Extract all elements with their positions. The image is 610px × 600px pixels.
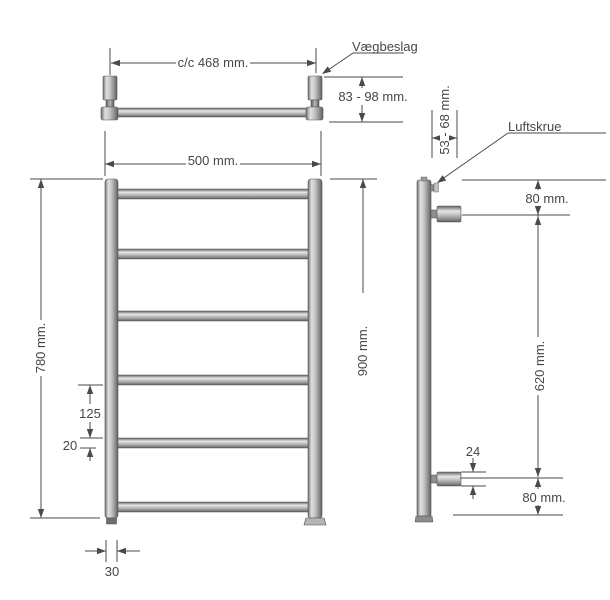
arrowhead-up: [360, 179, 366, 188]
arrowhead-right: [97, 548, 106, 554]
dim-wall-distance: 83 - 98 mm.: [324, 77, 408, 122]
arrowhead-down: [359, 113, 365, 122]
bracket-span-label: 620 mm.: [532, 341, 547, 392]
arrowhead-up: [535, 216, 541, 225]
top-view-right-bracket-base: [306, 107, 323, 120]
dim-center-distance: c/c 468 mm.: [110, 48, 316, 75]
center-distance-label: c/c 468 mm.: [178, 55, 249, 70]
air-screw-label: Luftskrue: [508, 119, 561, 134]
air-screw-cap: [421, 177, 427, 181]
arrowhead-up: [359, 77, 365, 86]
air-screw-stem: [431, 185, 435, 192]
bar-spacing-label: 125: [79, 406, 101, 421]
bottom-offset-label: 80 mm.: [522, 490, 565, 505]
dim-bar-spacing-125: 125: [78, 385, 103, 438]
arrowhead-up: [87, 448, 93, 457]
width-label: 500 mm.: [188, 153, 239, 168]
arrowhead-right: [312, 161, 321, 167]
arrowhead-left: [105, 161, 114, 167]
dim-width-500: 500 mm.: [105, 131, 321, 176]
front-right-rail: [308, 179, 322, 518]
arrowhead-down: [87, 429, 93, 438]
rail-width-label: 30: [105, 564, 119, 579]
front-left-foot: [107, 518, 117, 524]
side-view: 53 - 68 mm. Luftskrue 80 mm.: [415, 85, 606, 522]
wall-bracket-callout: Vægbeslag: [320, 39, 418, 77]
height-left-label: 780 mm.: [33, 323, 48, 374]
dim-rail-width-30: 30: [85, 540, 140, 579]
arrowhead-up: [535, 180, 541, 189]
arrowhead-up: [87, 385, 93, 394]
arrowhead-left: [111, 60, 120, 66]
top-view-left-bracket-base: [101, 107, 118, 120]
side-foot: [415, 516, 433, 522]
top-view-left-bracket-neck: [106, 100, 114, 107]
wall-bracket-label: Vægbeslag: [352, 39, 418, 54]
dim-height-900: 900 mm.: [330, 179, 377, 376]
arrowhead-down: [470, 463, 476, 472]
height-right-label: 900 mm.: [355, 326, 370, 377]
radiator-drawing: c/c 468 mm. Vægbeslag 83 - 98 mm.: [0, 0, 610, 600]
arrowhead-down: [535, 206, 541, 215]
front-bar-4: [116, 375, 310, 385]
dim-height-780: 780 mm.: [30, 179, 103, 518]
front-bar-1: [116, 189, 310, 199]
arrowhead-down: [38, 509, 44, 518]
leader-arrowhead: [320, 66, 331, 76]
air-screw-icon: [434, 183, 439, 192]
arrowhead-down: [535, 468, 541, 477]
arrowhead-right: [449, 135, 457, 141]
arrowhead-down: [535, 506, 541, 515]
dim-bar-diameter-20: 20: [63, 438, 103, 461]
front-bar-6: [116, 502, 310, 512]
arrowhead-up: [535, 478, 541, 487]
top-view-left-bracket-cylinder: [103, 76, 117, 100]
side-bottom-bracket-stub: [431, 475, 437, 483]
technical-drawing-page: c/c 468 mm. Vægbeslag 83 - 98 mm.: [0, 0, 610, 600]
top-view-right-bracket-neck: [311, 100, 319, 107]
dim-bottom-offset-80: 80 mm.: [453, 478, 569, 515]
arrowhead-up: [470, 486, 476, 495]
top-view-rail-tube: [117, 108, 307, 117]
side-top-bracket-stub: [431, 210, 437, 218]
dim-bracket-span-620: 620 mm.: [530, 215, 547, 477]
arrowhead-right: [307, 60, 316, 66]
air-screw-callout: Luftskrue: [435, 119, 606, 186]
side-rail: [417, 180, 431, 516]
side-top-bracket-cylinder: [437, 206, 461, 222]
front-bar-5: [116, 438, 310, 448]
top-offset-label: 80 mm.: [525, 191, 568, 206]
bracket-depth-label: 53 - 68 mm.: [437, 85, 452, 154]
top-view-right-bracket-cylinder: [308, 76, 322, 100]
arrowhead-left: [117, 548, 126, 554]
top-view: c/c 468 mm. Vægbeslag 83 - 98 mm.: [101, 39, 418, 122]
front-bar-2: [116, 249, 310, 259]
side-bottom-bracket-cylinder: [437, 472, 461, 486]
dim-top-offset-80: 80 mm.: [462, 180, 606, 215]
front-view: 500 mm. 780 mm. 900 mm. 125: [30, 131, 377, 579]
wall-distance-label: 83 - 98 mm.: [338, 89, 407, 104]
bar-diameter-label: 20: [63, 438, 77, 453]
front-right-foot: [304, 518, 326, 525]
dim-bracket-depth: 53 - 68 mm.: [432, 85, 457, 158]
bracket-diameter-label: 24: [466, 444, 480, 459]
front-left-rail: [105, 179, 118, 518]
front-bar-3: [116, 311, 310, 321]
arrowhead-up: [38, 179, 44, 188]
